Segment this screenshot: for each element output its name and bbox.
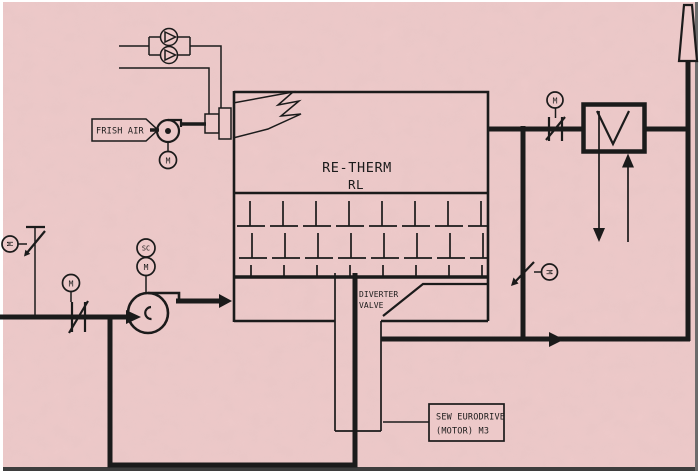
burner-body-large: [219, 108, 231, 139]
motor-letter: M: [553, 97, 558, 106]
speed-control-letters: SC: [142, 245, 150, 253]
motor-letter: M: [144, 263, 149, 272]
frame-shadow-right: [695, 2, 698, 471]
diverter-label-line1: DIVERTER: [359, 290, 398, 299]
drive-label-line1: SEW EURODRIVE: [436, 413, 505, 423]
fresh-air-fan-hub: [165, 128, 171, 134]
burner-body-small: [205, 114, 219, 133]
frame-shadow-bottom: [3, 467, 696, 471]
paper-texture: [3, 2, 696, 467]
diverter-label-line2: VALVE: [359, 301, 384, 310]
motor-letter: M: [545, 270, 554, 275]
process-diagram: FRISH AIR M M M S: [0, 0, 700, 473]
motor-letter: M: [166, 157, 171, 166]
unit-model-label: RL: [348, 177, 364, 192]
motor-letter: M: [69, 280, 74, 289]
drive-label-line2: (MOTOR) M3: [436, 427, 489, 437]
motor-letter: M: [6, 241, 15, 246]
fresh-air-label: FRISH AIR: [96, 127, 145, 137]
unit-name-label: RE-THERM: [322, 160, 392, 176]
